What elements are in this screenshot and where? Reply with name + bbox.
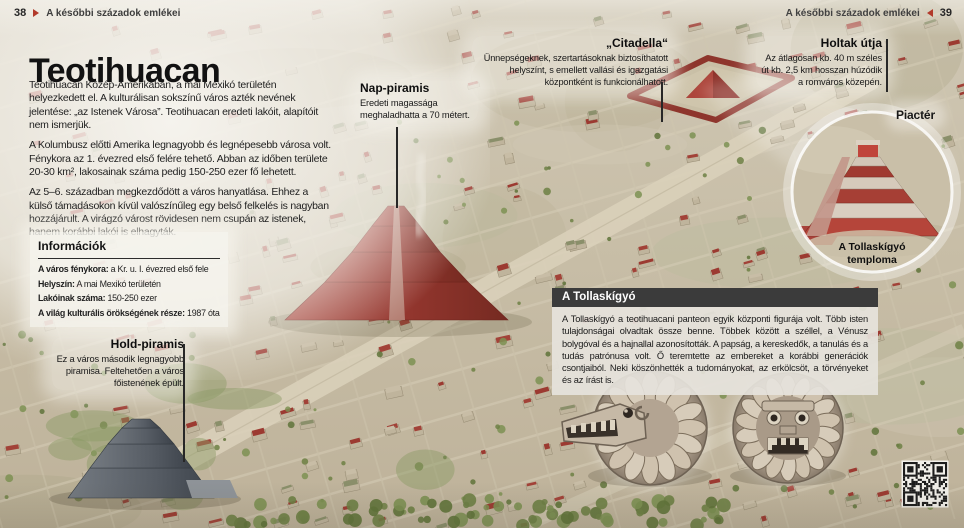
inset-caption: A Tollaskígyó temploma bbox=[818, 241, 926, 267]
callout-avenue: Holtak útja Az átlagosan kb. 40 m széles… bbox=[756, 36, 882, 89]
info-box: Információk A város fénykora: a Kr. u. I… bbox=[30, 232, 228, 327]
info-row: Helyszín: A mai Mexikó területén bbox=[38, 278, 220, 290]
page-number-left: 38 bbox=[14, 7, 26, 19]
info-value: 1987 óta bbox=[185, 308, 220, 318]
forward-arrow-icon bbox=[33, 9, 39, 17]
info-box-title: Információk bbox=[38, 238, 220, 259]
page-number-right: 39 bbox=[940, 7, 952, 19]
leader-line-moon bbox=[183, 344, 185, 462]
callout-sun-pyramid: Nap-piramis Eredeti magassága meghaladha… bbox=[360, 81, 478, 122]
chapter-title-left: A későbbi századok emlékei bbox=[46, 8, 180, 19]
callout-market: Piactér bbox=[893, 108, 938, 123]
intro-text: Teotihuacan Közép-Amerikában, a mai Mexi… bbox=[29, 79, 331, 247]
intro-paragraph: A Kolumbusz előtti Amerika legnagyobb és… bbox=[29, 139, 331, 179]
callout-text: Ünnepségeknek, szertartásoknak biztosíth… bbox=[472, 53, 668, 88]
running-head-left: 38 A későbbi századok emlékei bbox=[14, 7, 180, 19]
intro-paragraph: Teotihuacan Közép-Amerikában, a mai Mexi… bbox=[29, 79, 331, 132]
info-label: A világ kulturális örökségének része: bbox=[38, 308, 185, 318]
panel-title: A Tollaskígyó bbox=[552, 288, 878, 307]
info-value: 150-250 ezer bbox=[105, 293, 157, 303]
info-row: A világ kulturális örökségének része: 19… bbox=[38, 307, 220, 319]
panel-text: A Tollaskígyó a teotihuacani panteon egy… bbox=[552, 307, 878, 395]
info-value: A mai Mexikó területén bbox=[75, 279, 161, 289]
chapter-title-right: A későbbi századok emlékei bbox=[786, 8, 920, 19]
info-row: A város fénykora: a Kr. u. I. évezred el… bbox=[38, 263, 220, 275]
info-label: Lakóinak száma: bbox=[38, 293, 105, 303]
running-head-right: A későbbi századok emlékei 39 bbox=[786, 7, 952, 19]
callout-citadel: „Citadella“ Ünnepségeknek, szertartásokn… bbox=[472, 36, 668, 89]
leader-line-citadel bbox=[661, 82, 663, 122]
callout-title: Holtak útja bbox=[756, 36, 882, 51]
qr-code bbox=[902, 461, 949, 508]
leader-line-avenue bbox=[886, 39, 888, 92]
callout-title: „Citadella“ bbox=[472, 36, 668, 51]
leader-line-sun bbox=[396, 127, 398, 208]
callout-title: Nap-piramis bbox=[360, 81, 478, 96]
info-label: A város fénykora: bbox=[38, 264, 108, 274]
callout-moon-pyramid: Hold-piramis Ez a város második legnagyo… bbox=[52, 337, 184, 390]
info-value: a Kr. u. I. évezred első fele bbox=[108, 264, 208, 274]
back-arrow-icon bbox=[927, 9, 933, 17]
callout-text: Ez a város második legnagyobb piramisa. … bbox=[52, 354, 184, 390]
book-spread: 38 A későbbi századok emlékei A későbbi … bbox=[0, 0, 964, 528]
callout-text: Az átlagosan kb. 40 m széles út kb. 2,5 … bbox=[756, 53, 882, 89]
info-label: Helyszín: bbox=[38, 279, 75, 289]
callout-title: Hold-piramis bbox=[52, 337, 184, 352]
info-row: Lakóinak száma: 150-250 ezer bbox=[38, 292, 220, 304]
feathered-serpent-panel: A Tollaskígyó A Tollaskígyó a teotihuaca… bbox=[552, 288, 878, 395]
callout-text: Eredeti magassága meghaladhatta a 70 mét… bbox=[360, 98, 478, 122]
